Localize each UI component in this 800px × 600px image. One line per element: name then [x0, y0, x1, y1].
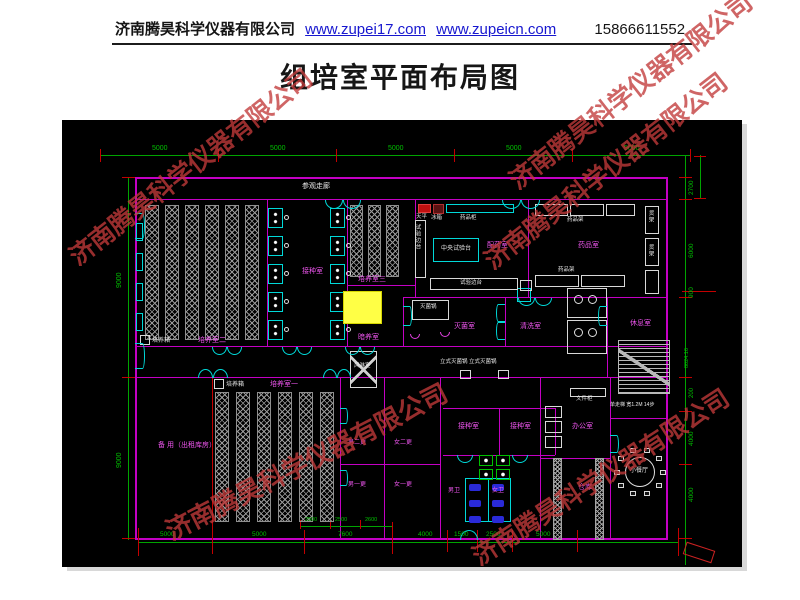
toilet-fixture-icon: [469, 484, 481, 491]
website-link-2[interactable]: www.zupeicn.com: [436, 21, 556, 38]
room-label: 药品架: [558, 268, 575, 274]
dimension-label: 2500: [486, 532, 500, 539]
room-label: 灭菌室: [454, 323, 475, 330]
dimension-label: 5000: [388, 145, 404, 152]
room-label: 培养室三: [358, 276, 386, 283]
clean-bench-icon: [268, 208, 283, 228]
room-label: 立式灭菌锅 立式灭菌锅: [440, 360, 497, 366]
room-label: 货架: [647, 244, 653, 257]
wall-line: [505, 298, 506, 346]
wall-line: [340, 378, 341, 538]
fridge-box: [433, 204, 444, 214]
knob-icon: [284, 299, 289, 304]
knob-icon: [574, 295, 583, 304]
dimension-label: 5000: [270, 145, 286, 152]
equipment-box: [535, 275, 579, 287]
equipment-box: [545, 436, 562, 448]
door-arc-icon: [198, 369, 213, 378]
room-label: 试验边台: [460, 281, 482, 287]
dimension-label: 6000: [689, 244, 696, 258]
dimension-tick: [212, 378, 213, 538]
page-title: 组培室平面布局图: [0, 56, 800, 96]
room-label: 女一更: [394, 482, 412, 488]
room-label: 中央试验台: [441, 246, 471, 252]
door-arc-icon: [518, 298, 535, 306]
room-label: 男二更: [348, 440, 366, 446]
equipment-box: [498, 370, 509, 379]
knob-icon: [346, 243, 351, 248]
clean-bench-icon: [330, 208, 345, 228]
drain-icon: [440, 332, 450, 337]
room-label: 男一更: [348, 482, 366, 488]
room-label: 培养箱: [152, 338, 170, 344]
floorplan-image: 参观走廊培养箱培养室二接种室培养室三暗养室天平冰箱药品柜中央试验台试验边台试验边…: [62, 120, 742, 567]
partition-line: [488, 478, 489, 522]
wall-line: [384, 378, 385, 538]
green-bench-icon: [479, 469, 493, 480]
wall-line: [347, 285, 415, 286]
wall-line: [135, 538, 668, 540]
equipment-box: [460, 370, 471, 379]
room-label: 培养箱: [226, 382, 244, 388]
dimension-tick: [304, 530, 305, 554]
dimension-label: 5000: [252, 532, 266, 539]
green-bench-icon: [479, 455, 493, 466]
dimension-label: 900: [689, 287, 696, 298]
dimension-tick: [477, 530, 478, 552]
header-bar: 济南腾昊科学仪器有限公司 www.zupei17.com www.zupeicn…: [0, 18, 800, 39]
dimension-label: 4000: [418, 532, 432, 539]
door-arc-icon: [598, 306, 607, 326]
north-marker-icon: [683, 542, 716, 564]
balance-box: [418, 204, 431, 213]
door-arc-icon: [135, 343, 145, 369]
door-arc-icon: [212, 347, 227, 355]
knob-icon: [284, 243, 289, 248]
door-arc-icon: [535, 298, 552, 306]
lattice-column: [553, 458, 562, 540]
dimension-label: 8024.16: [685, 348, 691, 368]
dimension-label: 4000: [689, 432, 696, 446]
clean-bench-icon: [268, 264, 283, 284]
room-label: 仓库: [578, 484, 592, 491]
shelf-rack: [299, 392, 313, 522]
page: 济南腾昊科学仪器有限公司 www.zupei17.com www.zupeicn…: [0, 0, 800, 600]
dimension-tick: [454, 149, 455, 162]
door-arc-icon: [282, 347, 297, 355]
door-arc-icon: [340, 470, 348, 486]
dimension-tick: [679, 199, 692, 200]
dimension-label: 2700: [689, 181, 696, 195]
knob-icon: [588, 295, 597, 304]
air-shower-icon: [350, 351, 377, 388]
clean-bench-icon: [268, 292, 283, 312]
room-label: 接种室: [302, 268, 323, 275]
room-label: 培养室二: [198, 337, 226, 344]
equipment-box: [545, 406, 562, 418]
knob-icon: [284, 271, 289, 276]
shelf-rack: [215, 392, 229, 522]
dimension-label: 2600: [365, 518, 377, 524]
dimension-label: 5000: [624, 145, 640, 152]
wall-line: [135, 177, 668, 179]
dimension-label: 9000: [116, 452, 123, 468]
dimension-line: [128, 177, 129, 540]
chair-icon: [660, 470, 666, 475]
dimension-tick: [577, 530, 578, 552]
dimension-tick: [392, 522, 393, 554]
room-label: 暗养室: [358, 334, 379, 341]
company-name: 济南腾昊科学仪器有限公司: [115, 21, 295, 38]
fixture-outline: [136, 253, 143, 271]
door-arc-icon: [227, 347, 242, 355]
toilet-fixture-icon: [469, 516, 481, 523]
room-label: 培养室一: [270, 381, 298, 388]
knob-icon: [574, 328, 583, 337]
chair-icon: [618, 483, 624, 488]
shelf-rack: [320, 392, 334, 522]
equipment-box: [581, 275, 625, 287]
room-label: 文件柜: [576, 397, 593, 403]
shelf-rack: [185, 205, 199, 340]
room-label: 货架: [647, 210, 653, 223]
room-label: 单走梯 宽1.2M 14步: [610, 403, 654, 408]
room-label: 药品室: [578, 242, 599, 249]
chair-icon: [656, 483, 662, 488]
shelf-rack: [165, 205, 179, 340]
wall-line: [499, 408, 500, 455]
dimension-tick: [679, 377, 692, 378]
dimension-tick: [336, 149, 337, 162]
room-label: 接种室: [510, 423, 531, 430]
room-label: 试验边台: [414, 224, 420, 250]
dimension-tick: [100, 149, 101, 162]
wall-line: [135, 199, 668, 200]
door-arc-icon: [496, 322, 505, 340]
room-label: 女二更: [394, 440, 412, 446]
room-label: 药品柜: [460, 216, 477, 222]
door-arc-icon: [457, 455, 473, 463]
dimension-line: [700, 155, 701, 199]
chair-icon: [644, 491, 650, 496]
shelf-rack: [257, 392, 271, 522]
clean-bench-icon: [268, 320, 283, 340]
room-label: 办公室: [572, 423, 593, 430]
equipment-box: [570, 204, 604, 216]
room-label: 接种室: [458, 423, 479, 430]
clean-bench-icon: [268, 236, 283, 256]
knob-icon: [346, 215, 351, 220]
door-arc-icon: [323, 369, 337, 378]
fixture-outline: [136, 313, 143, 331]
dimension-tick: [678, 528, 679, 556]
shelf-rack: [145, 205, 159, 340]
dimension-tick: [694, 156, 706, 157]
room-label: 天平: [416, 215, 427, 221]
dimension-label: 5000: [152, 145, 168, 152]
knob-icon: [284, 215, 289, 220]
green-bench-icon: [496, 455, 510, 466]
knob-icon: [588, 328, 597, 337]
door-arc-icon: [135, 213, 145, 239]
dimension-tick: [218, 149, 219, 162]
door-arc-icon: [610, 435, 619, 453]
shelf-rack: [236, 392, 250, 522]
dimension-label: 4000: [689, 488, 696, 502]
door-arc-icon: [297, 347, 312, 355]
dimension-tick: [679, 177, 692, 178]
dimension-tick: [679, 411, 692, 412]
dimension-tick: [572, 149, 573, 162]
room-label: 灭菌锅: [420, 305, 437, 311]
dimension-tick: [122, 377, 135, 378]
room-label: 小餐厅: [630, 468, 648, 474]
toilet-fixture-icon: [492, 500, 504, 507]
door-arc-icon: [213, 369, 228, 378]
room-label: 女卫: [492, 488, 504, 494]
shelf-rack: [350, 205, 363, 277]
header-divider: [112, 43, 692, 45]
shelf-rack: [205, 205, 219, 340]
chair-icon: [630, 448, 636, 453]
room-label: 风淋室: [354, 364, 371, 370]
fixture-outline: [136, 283, 143, 301]
dimension-label: 7600: [338, 532, 352, 539]
dimension-tick: [138, 528, 139, 556]
highlight-box: [343, 291, 382, 324]
dimension-label: 200: [689, 388, 695, 398]
staircase-icon: [618, 340, 670, 394]
shelf-rack: [278, 392, 292, 522]
knob-icon: [346, 271, 351, 276]
dimension-line: [100, 155, 690, 156]
shelf-rack: [386, 205, 399, 277]
room-label: 男卫: [448, 488, 460, 494]
equipment-box: [535, 204, 568, 216]
room-label: 配药室: [487, 242, 508, 249]
dimension-line: [300, 526, 392, 527]
shelf-rack: [368, 205, 381, 277]
knob-icon: [346, 327, 351, 332]
dimension-tick: [447, 530, 448, 552]
chair-icon: [614, 470, 620, 475]
knob-icon: [284, 327, 289, 332]
drain-icon: [410, 334, 420, 339]
dimension-tick: [679, 464, 692, 465]
room-label: 药品架: [567, 218, 584, 224]
door-arc-icon: [512, 455, 528, 463]
dimension-label: 2500: [335, 518, 347, 524]
shelf-rack: [245, 205, 259, 340]
lattice-column: [595, 458, 604, 540]
door-arc-icon: [340, 408, 348, 424]
dimension-tick: [512, 530, 513, 552]
phone-number: 15866611552: [594, 21, 685, 38]
wall-line: [440, 378, 441, 538]
wall-line: [607, 298, 608, 378]
dimension-tick: [122, 538, 135, 539]
dimension-label: 5000: [536, 532, 550, 539]
dimension-tick: [360, 520, 361, 529]
equipment-box: [645, 270, 659, 294]
dimension-label: 5000: [160, 532, 174, 539]
dimension-tick: [690, 149, 691, 162]
toilet-fixture-icon: [469, 500, 481, 507]
green-bench-icon: [496, 469, 510, 480]
equipment-box: [214, 379, 224, 389]
clean-bench-icon: [330, 264, 345, 284]
room-label: 休息室: [630, 320, 651, 327]
door-arc-icon: [403, 306, 412, 326]
chair-icon: [656, 456, 662, 461]
room-label: 备 用（出租库房）: [158, 442, 216, 449]
door-arc-icon: [337, 369, 351, 378]
dimension-label: 2500: [305, 518, 317, 524]
chair-icon: [644, 448, 650, 453]
chair-icon: [618, 456, 624, 461]
room-label: 参观走廊: [302, 183, 330, 190]
wall-line: [340, 464, 440, 465]
dimension-line: [138, 542, 678, 543]
dimension-tick: [122, 177, 135, 178]
equipment-box: [520, 280, 532, 291]
room-label: 清洗室: [520, 323, 541, 330]
dimension-tick: [694, 198, 706, 199]
door-arc-icon: [496, 304, 505, 322]
shelf-rack: [225, 205, 239, 340]
equipment-box: [545, 421, 562, 433]
chair-icon: [630, 491, 636, 496]
room-label: 冰箱: [431, 216, 442, 222]
toilet-fixture-icon: [492, 516, 504, 523]
dimension-label: 5000: [506, 145, 522, 152]
website-link-1[interactable]: www.zupei17.com: [305, 21, 426, 38]
dimension-tick: [679, 538, 692, 539]
dimension-label: 9000: [116, 272, 123, 288]
clean-bench-icon: [330, 236, 345, 256]
equipment-box: [606, 204, 635, 216]
wall-line: [610, 418, 668, 419]
dimension-label: 1500: [454, 532, 468, 539]
